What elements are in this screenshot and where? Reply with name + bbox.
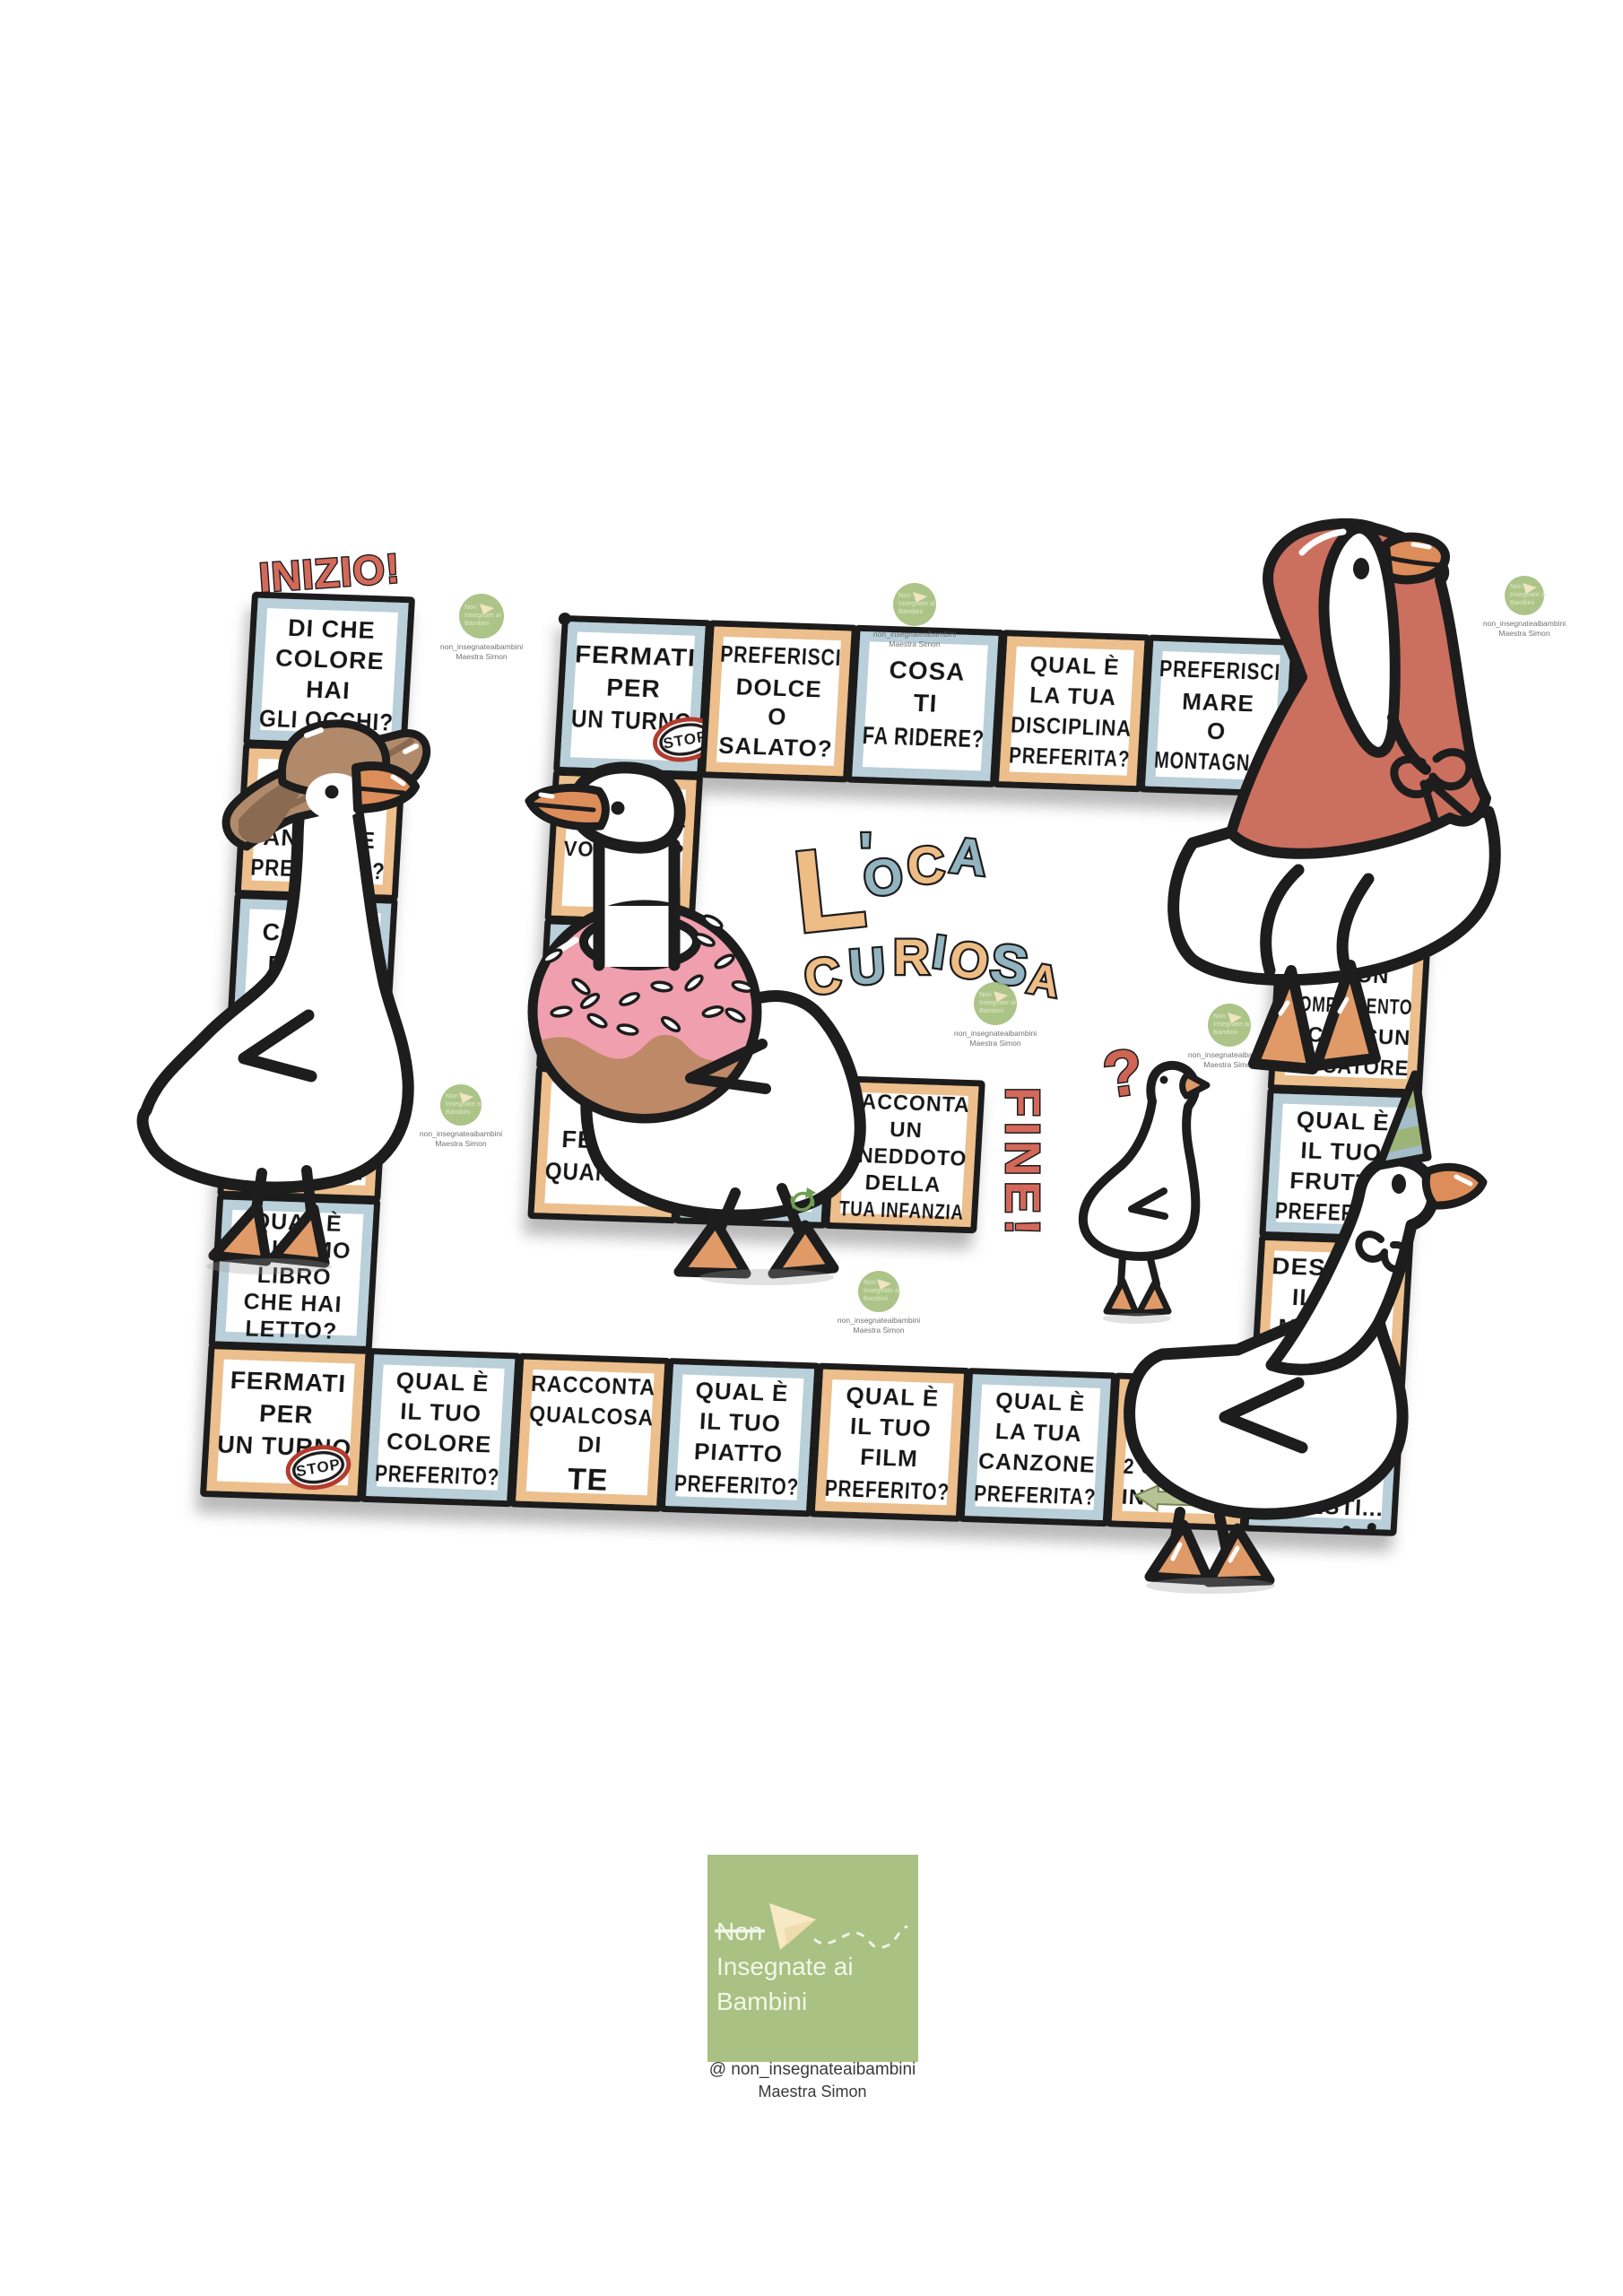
svg-text:C: C — [801, 945, 846, 1006]
svg-text:FINE!: FINE! — [995, 1087, 1049, 1240]
svg-text:SALATO?: SALATO? — [717, 732, 833, 762]
svg-text:FERMATI: FERMATI — [230, 1366, 347, 1397]
svg-text:QUAL È: QUAL È — [1296, 1106, 1390, 1135]
svg-text:TE: TE — [567, 1462, 610, 1497]
svg-text:Insegnate ai: Insegnate ai — [716, 1952, 854, 1980]
svg-text:QUAL È: QUAL È — [846, 1382, 940, 1412]
svg-text:Bambini: Bambini — [716, 1987, 807, 2015]
svg-text:INIZIO!: INIZIO! — [257, 544, 402, 601]
svg-text:HAI: HAI — [305, 676, 351, 705]
svg-text:LA TUA: LA TUA — [1029, 683, 1117, 710]
svg-text:PER: PER — [258, 1399, 314, 1429]
svg-text:TUA INFANZIA: TUA INFANZIA — [838, 1196, 964, 1225]
svg-text:DI: DI — [577, 1432, 603, 1458]
svg-text:Maestra Simon: Maestra Simon — [889, 639, 940, 648]
svg-text:Insegnate ai: Insegnate ai — [864, 1286, 900, 1294]
svg-text:non_insegnateaibambini: non_insegnateaibambini — [954, 1029, 1037, 1038]
svg-text:Bambini: Bambini — [1213, 1028, 1237, 1036]
svg-text:Maestra Simon: Maestra Simon — [1203, 1060, 1254, 1069]
svg-text:Bambini: Bambini — [464, 619, 489, 627]
svg-text:MARE: MARE — [1181, 688, 1254, 717]
svg-text:Maestra Simon: Maestra Simon — [1498, 629, 1549, 638]
svg-text:O: O — [860, 846, 907, 908]
svg-text:O: O — [1206, 717, 1227, 745]
svg-text:Non: Non — [898, 591, 911, 599]
svg-text:Insegnate ai: Insegnate ai — [1213, 1020, 1250, 1028]
svg-text:non_insegnateaibambini: non_insegnateaibambini — [1483, 619, 1566, 628]
svg-text:Maestra Simon: Maestra Simon — [853, 1326, 904, 1335]
svg-text:O: O — [767, 703, 787, 731]
svg-text:TI: TI — [913, 689, 939, 717]
svg-text:FERMATI: FERMATI — [574, 639, 697, 671]
svg-text:non_insegnateaibambini: non_insegnateaibambini — [440, 642, 523, 651]
svg-text:QUAL È: QUAL È — [395, 1367, 490, 1396]
svg-text:Bambini: Bambini — [446, 1108, 470, 1116]
svg-text:Non: Non — [464, 603, 477, 611]
svg-text:PREFERISCI: PREFERISCI — [720, 640, 843, 671]
svg-text:PREFERITO?: PREFERITO? — [374, 1459, 500, 1491]
svg-text:C: C — [905, 835, 947, 896]
svg-text:DISCIPLINA: DISCIPLINA — [1010, 712, 1133, 741]
svg-text:Insegnate ai: Insegnate ai — [464, 611, 501, 619]
svg-text:FILM: FILM — [859, 1443, 918, 1472]
svg-text:non_insegnateaibambini: non_insegnateaibambini — [873, 630, 956, 639]
svg-text:DELLA: DELLA — [864, 1170, 942, 1197]
svg-text:IL TUO: IL TUO — [400, 1397, 482, 1427]
svg-text:PREFERITO?: PREFERITO? — [824, 1474, 950, 1506]
svg-text:UN: UN — [889, 1118, 923, 1143]
svg-text:Maestra Simon: Maestra Simon — [435, 1139, 486, 1148]
svg-text:Insegnate ai: Insegnate ai — [446, 1100, 482, 1108]
svg-text:Maestra Simon: Maestra Simon — [456, 652, 507, 661]
svg-text:COLORE: COLORE — [386, 1428, 492, 1458]
svg-text:Insegnate ai: Insegnate ai — [1510, 590, 1547, 598]
svg-text:LA TUA: LA TUA — [994, 1419, 1082, 1447]
svg-text:LETTO?: LETTO? — [245, 1316, 338, 1344]
svg-text:COSA: COSA — [889, 656, 967, 686]
svg-text:Maestra Simon: Maestra Simon — [758, 2083, 866, 2100]
svg-text:A: A — [948, 826, 991, 886]
svg-text:COLORE: COLORE — [274, 644, 385, 674]
svg-text:PIATTO: PIATTO — [693, 1438, 784, 1467]
svg-text:QUALCOSA: QUALCOSA — [528, 1402, 655, 1431]
svg-text:FA RIDERE?: FA RIDERE? — [862, 721, 985, 752]
svg-text:IL TUO: IL TUO — [699, 1407, 781, 1437]
svg-text:PREFERITO?: PREFERITO? — [673, 1469, 800, 1500]
svg-text:PER: PER — [605, 674, 661, 703]
svg-text:Bambini: Bambini — [979, 1006, 1003, 1014]
svg-text:QUAL È: QUAL È — [1029, 651, 1121, 680]
svg-text:RACCONTA: RACCONTA — [530, 1371, 656, 1401]
svg-text:DOLCE: DOLCE — [735, 673, 823, 702]
svg-text:QUAL È: QUAL È — [995, 1387, 1087, 1416]
svg-text:@ non_insegnateaibambini: @ non_insegnateaibambini — [709, 2060, 916, 2079]
svg-text:DI CHE: DI CHE — [287, 614, 376, 644]
svg-text:Non: Non — [979, 990, 992, 998]
svg-text:CANZONE: CANZONE — [977, 1448, 1096, 1477]
svg-text:U: U — [846, 936, 888, 996]
svg-text:non_insegnateaibambini: non_insegnateaibambini — [838, 1316, 920, 1325]
svg-text:IL TUO: IL TUO — [849, 1413, 932, 1442]
svg-text:Non: Non — [446, 1091, 458, 1100]
svg-text:Non: Non — [1213, 1012, 1226, 1020]
svg-text:Insegnate ai: Insegnate ai — [979, 998, 1016, 1006]
svg-text:non_insegnateaibambini: non_insegnateaibambini — [420, 1129, 502, 1138]
svg-text:Maestra Simon: Maestra Simon — [969, 1039, 1020, 1048]
svg-text:Bambini: Bambini — [898, 607, 923, 615]
svg-text:Bambini: Bambini — [1510, 598, 1534, 606]
svg-text:QUAL È: QUAL È — [695, 1377, 789, 1406]
svg-text:R: R — [893, 928, 930, 985]
svg-text:Bambini: Bambini — [864, 1294, 888, 1302]
svg-text:Non: Non — [1510, 582, 1523, 590]
svg-text:PREFERITA?: PREFERITA? — [974, 1481, 1098, 1509]
svg-text:IL TUO: IL TUO — [1300, 1136, 1383, 1166]
svg-text:PREFERITA?: PREFERITA? — [1008, 743, 1131, 771]
svg-text:Insegnate ai: Insegnate ai — [898, 599, 935, 607]
svg-text:PREFERISCI: PREFERISCI — [1159, 655, 1281, 685]
svg-text:CHE HAI: CHE HAI — [243, 1289, 343, 1318]
svg-text:Non: Non — [864, 1278, 876, 1286]
